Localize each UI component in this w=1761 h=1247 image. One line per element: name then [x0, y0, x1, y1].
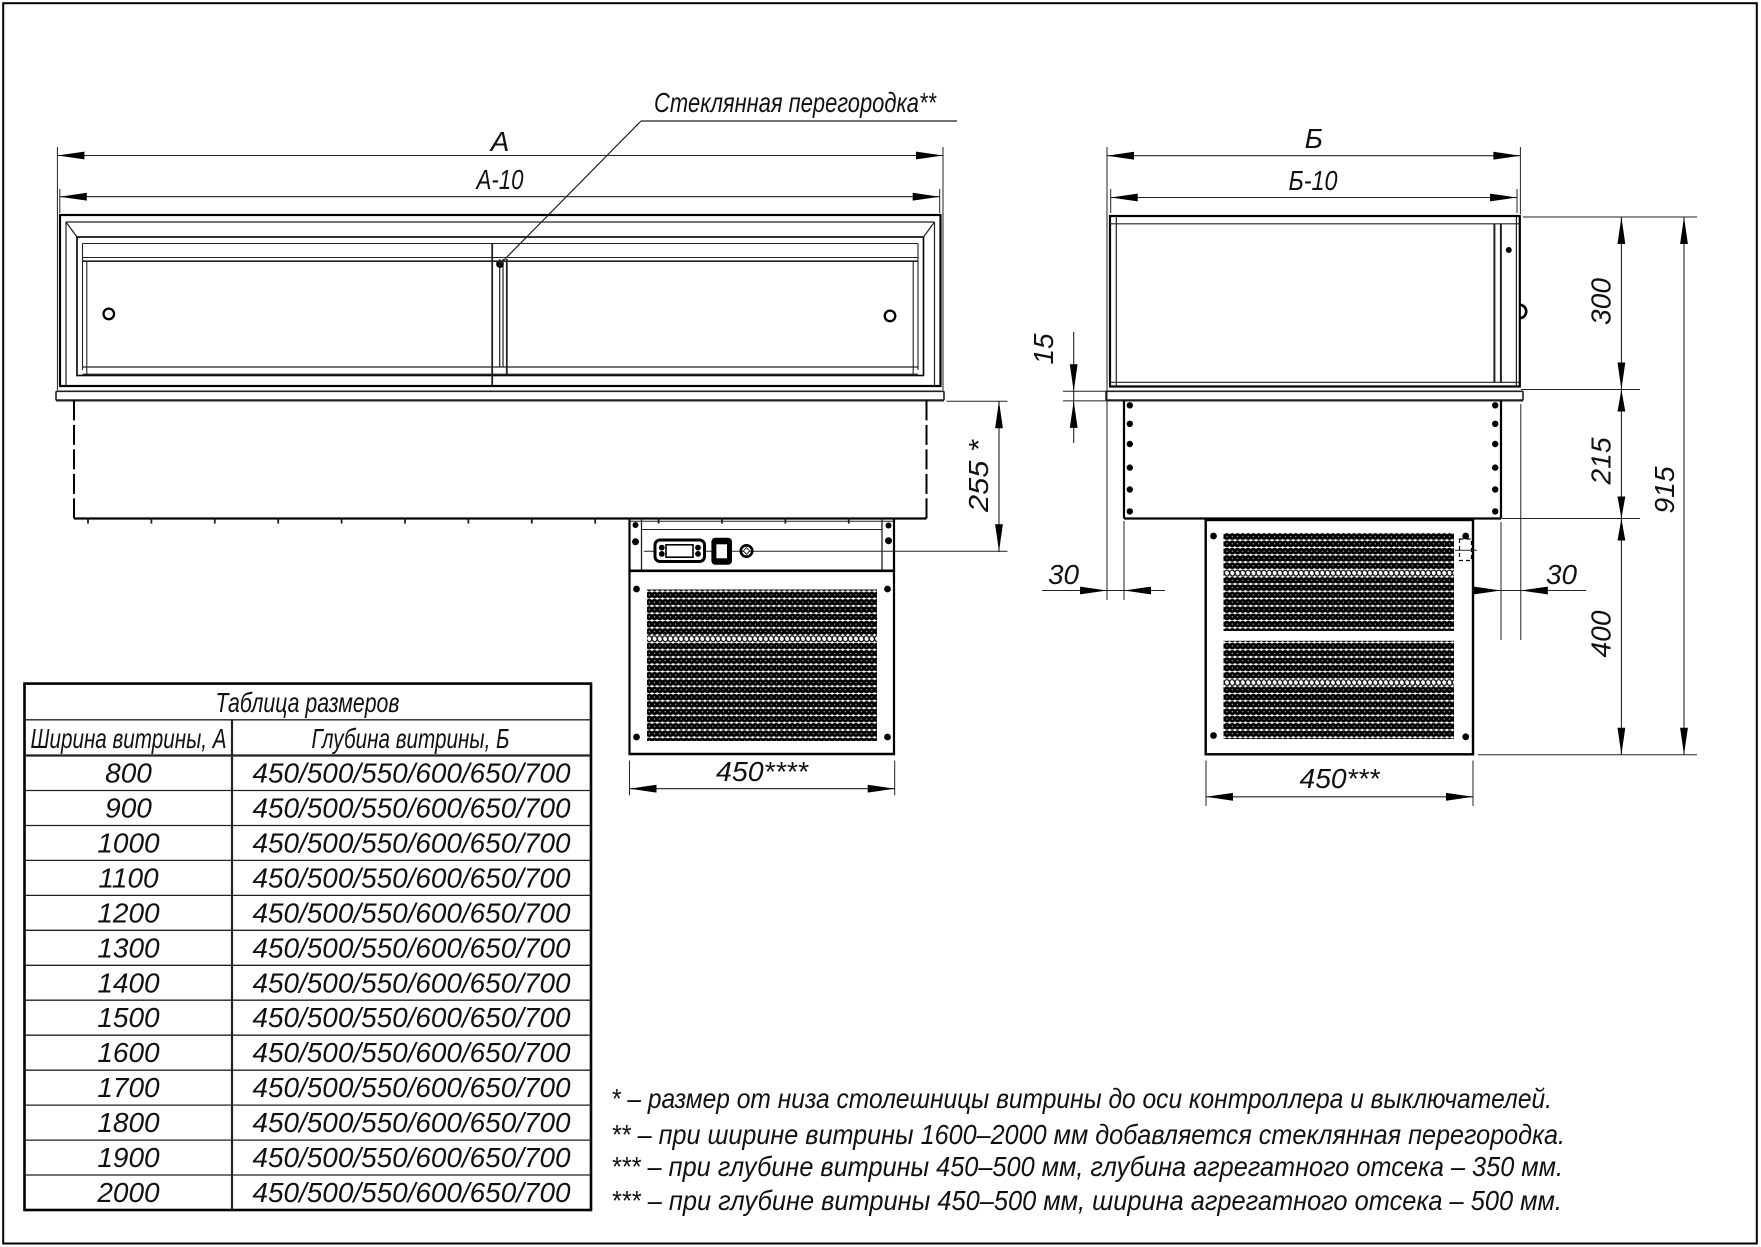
svg-text:Стеклянная перегородка**: Стеклянная перегородка** — [654, 87, 937, 118]
svg-text:Б: Б — [1305, 123, 1323, 154]
svg-text:Ширина витрины, А: Ширина витрины, А — [31, 723, 227, 754]
svg-text:30: 30 — [1546, 559, 1577, 590]
svg-text:450/500/550/600/650/700: 450/500/550/600/650/700 — [253, 1142, 571, 1173]
svg-text:А-10: А-10 — [475, 164, 524, 195]
svg-text:215: 215 — [1586, 437, 1617, 485]
svg-text:1300: 1300 — [97, 932, 160, 963]
svg-text:1400: 1400 — [97, 967, 160, 998]
svg-text:1900: 1900 — [97, 1142, 160, 1173]
svg-text:1500: 1500 — [97, 1002, 160, 1033]
svg-text:450***: 450*** — [1300, 763, 1381, 794]
svg-text:450/500/550/600/650/700: 450/500/550/600/650/700 — [253, 967, 571, 998]
svg-text:255 *: 255 * — [963, 439, 994, 513]
svg-text:450/500/550/600/650/700: 450/500/550/600/650/700 — [253, 1037, 571, 1068]
svg-text:*** – при глубине витрины 450–: *** – при глубине витрины 450–500 мм, ши… — [611, 1185, 1562, 1216]
svg-text:450/500/550/600/650/700: 450/500/550/600/650/700 — [253, 897, 571, 928]
svg-text:450/500/550/600/650/700: 450/500/550/600/650/700 — [253, 932, 571, 963]
svg-text:2000: 2000 — [96, 1177, 160, 1208]
svg-text:915: 915 — [1649, 466, 1680, 513]
svg-text:1800: 1800 — [97, 1107, 160, 1138]
svg-text:30: 30 — [1048, 559, 1079, 590]
svg-text:450/500/550/600/650/700: 450/500/550/600/650/700 — [253, 862, 571, 893]
svg-text:900: 900 — [105, 793, 152, 824]
svg-text:** – при ширине витрины 1600–2: ** – при ширине витрины 1600–2000 мм доб… — [611, 1119, 1565, 1150]
svg-text:450/500/550/600/650/700: 450/500/550/600/650/700 — [253, 758, 571, 789]
svg-text:450/500/550/600/650/700: 450/500/550/600/650/700 — [253, 827, 571, 858]
svg-text:15: 15 — [1028, 333, 1059, 364]
svg-text:450****: 450**** — [716, 756, 809, 787]
svg-text:1600: 1600 — [97, 1037, 160, 1068]
svg-text:450/500/550/600/650/700: 450/500/550/600/650/700 — [253, 1107, 571, 1138]
svg-text:* – размер от низа столешницы: * – размер от низа столешницы витрины до… — [611, 1083, 1552, 1114]
svg-text:Глубина витрины, Б: Глубина витрины, Б — [312, 723, 510, 754]
svg-text:800: 800 — [105, 758, 152, 789]
svg-text:450/500/550/600/650/700: 450/500/550/600/650/700 — [253, 793, 571, 824]
svg-text:1700: 1700 — [97, 1072, 160, 1103]
svg-text:А: А — [489, 126, 510, 157]
svg-text:450/500/550/600/650/700: 450/500/550/600/650/700 — [253, 1002, 571, 1033]
svg-text:*** – при глубине витрины 450–: *** – при глубине витрины 450–500 мм, гл… — [611, 1151, 1563, 1182]
svg-text:450/500/550/600/650/700: 450/500/550/600/650/700 — [253, 1177, 571, 1208]
svg-text:1200: 1200 — [97, 897, 160, 928]
svg-text:300: 300 — [1586, 278, 1617, 325]
svg-text:400: 400 — [1586, 610, 1617, 657]
svg-text:450/500/550/600/650/700: 450/500/550/600/650/700 — [253, 1072, 571, 1103]
svg-text:1000: 1000 — [97, 827, 160, 858]
svg-text:Таблица размеров: Таблица размеров — [216, 687, 400, 718]
svg-text:1100: 1100 — [98, 862, 159, 893]
svg-text:Б-10: Б-10 — [1289, 165, 1338, 196]
